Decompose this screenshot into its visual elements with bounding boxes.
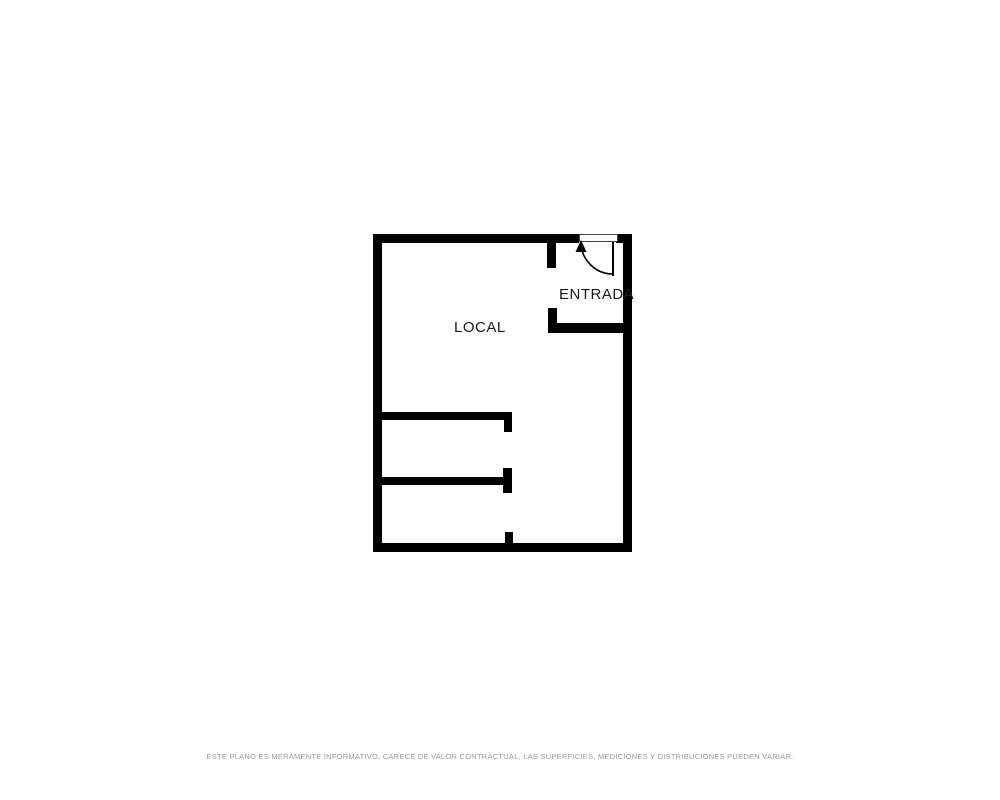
room-label-entrada: ENTRADA xyxy=(559,287,634,302)
door-swing-icon xyxy=(565,230,635,290)
floorplan-canvas: LOCAL ENTRADA ESTE PLANO ES MERAMENTE IN… xyxy=(0,0,1000,800)
outer-wall-left xyxy=(373,234,382,552)
vestibule-wall-upper xyxy=(547,243,556,268)
bottom-wall-stub xyxy=(505,532,513,545)
interior-wall-lower xyxy=(381,477,503,485)
outer-wall-bottom xyxy=(373,543,632,552)
interior-wall-upper-stub xyxy=(504,412,512,432)
interior-wall-lower-stub xyxy=(503,468,512,493)
vestibule-wall-bottom xyxy=(548,323,632,333)
outer-wall-top-left-segment xyxy=(373,234,579,243)
disclaimer-text: ESTE PLANO ES MERAMENTE INFORMATIVO, CAR… xyxy=(0,752,1000,761)
room-label-local: LOCAL xyxy=(454,320,506,335)
interior-wall-upper xyxy=(381,412,512,420)
